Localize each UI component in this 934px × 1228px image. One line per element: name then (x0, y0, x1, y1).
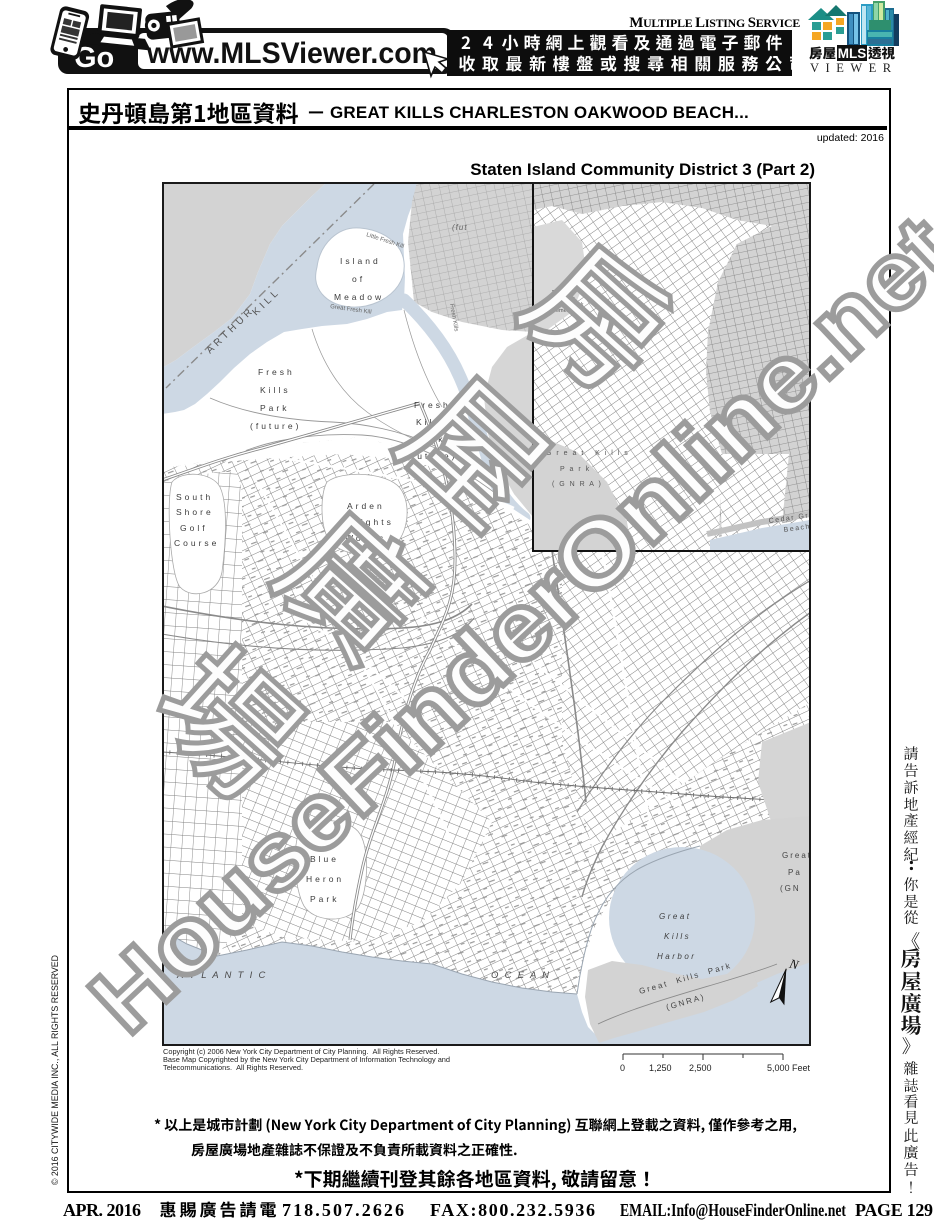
svg-text:718.507.2626: 718.507.2626 (282, 1200, 404, 1220)
svg-text:APR. 2016: APR. 2016 (63, 1200, 141, 1220)
svg-text:© 2016 CITYWIDE MEDIA INC., AL: © 2016 CITYWIDE MEDIA INC., ALL RIGHTS R… (50, 955, 61, 1185)
svg-text:FAX:800.232.5936: FAX:800.232.5936 (430, 1200, 595, 1220)
svg-text:EMAIL:Info@HouseFinderOnline.n: EMAIL:Info@HouseFinderOnline.net (620, 1200, 846, 1220)
svg-text:PAGE 129: PAGE 129 (855, 1200, 933, 1220)
